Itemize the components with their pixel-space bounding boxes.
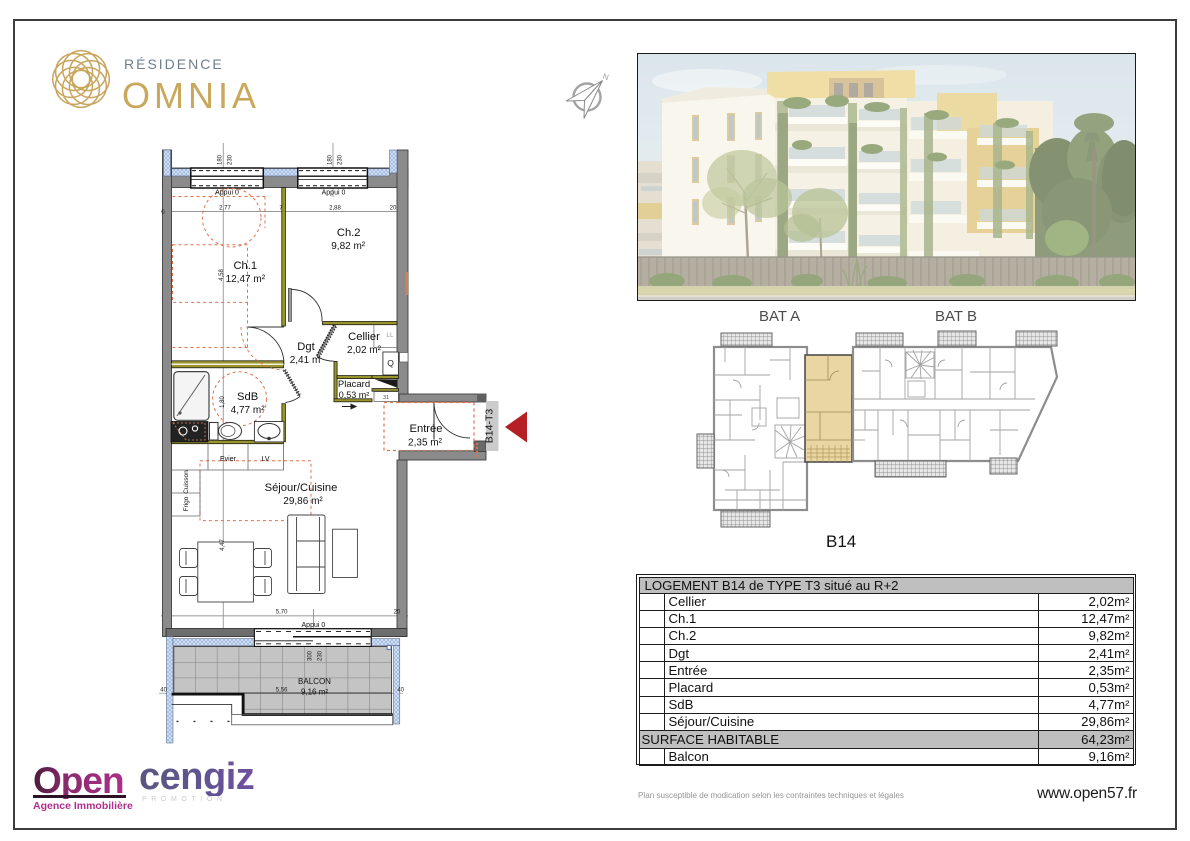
svg-text:Séjour/Cuisine: Séjour/Cuisine xyxy=(265,482,338,494)
svg-text:Dgt: Dgt xyxy=(297,341,315,353)
svg-text:4,47: 4,47 xyxy=(220,539,226,551)
svg-text:1,80: 1,80 xyxy=(220,396,226,408)
svg-text:2,77: 2,77 xyxy=(219,206,231,212)
svg-text:Frigo: Frigo xyxy=(183,496,190,511)
svg-text:230: 230 xyxy=(228,154,234,165)
svg-text:40: 40 xyxy=(397,688,404,694)
svg-text:31: 31 xyxy=(383,395,389,401)
svg-text:Q: Q xyxy=(387,358,394,368)
svg-text:Appui 0: Appui 0 xyxy=(215,190,239,197)
svg-text:SdB: SdB xyxy=(237,391,258,403)
svg-text:B14: B14 xyxy=(826,532,856,551)
svg-text:20: 20 xyxy=(394,610,401,616)
svg-text:Ch.2: Ch.2 xyxy=(337,227,361,239)
svg-text:RÉSIDENCE: RÉSIDENCE xyxy=(124,56,224,72)
svg-text:29,86 m²: 29,86 m² xyxy=(283,496,323,507)
svg-text:9,82 m²: 9,82 m² xyxy=(331,241,366,252)
svg-text:12,47 m²: 12,47 m² xyxy=(226,274,266,285)
svg-text:9,16 m²: 9,16 m² xyxy=(301,688,328,697)
svg-text:Placard: Placard xyxy=(338,379,370,390)
svg-text:0,53 m²: 0,53 m² xyxy=(339,390,370,400)
svg-text:2,41 m: 2,41 m xyxy=(290,355,321,366)
svg-text:Appui 0: Appui 0 xyxy=(322,190,346,197)
svg-text:230: 230 xyxy=(338,154,344,165)
svg-text:BAT B: BAT B xyxy=(935,308,977,325)
svg-text:2,35 m²: 2,35 m² xyxy=(408,438,443,449)
svg-text:300: 300 xyxy=(308,650,314,661)
svg-text:B14-T3: B14-T3 xyxy=(484,409,496,444)
svg-text:5,70: 5,70 xyxy=(276,610,288,616)
svg-text:BAT A: BAT A xyxy=(759,308,800,325)
svg-text:Cellier: Cellier xyxy=(348,331,380,343)
svg-text:LL: LL xyxy=(386,332,394,339)
svg-text:5,56: 5,56 xyxy=(276,688,288,694)
svg-text:2,02 m²: 2,02 m² xyxy=(347,345,382,356)
svg-text:BALCON: BALCON xyxy=(298,677,331,686)
svg-text:OMNIA: OMNIA xyxy=(122,75,260,116)
svg-text:230: 230 xyxy=(318,650,324,661)
svg-text:20: 20 xyxy=(390,206,397,212)
svg-text:4,58: 4,58 xyxy=(219,269,225,281)
svg-text:N: N xyxy=(602,72,610,82)
svg-text:Appui 0: Appui 0 xyxy=(302,622,326,629)
svg-text:4,77 m²: 4,77 m² xyxy=(231,405,266,416)
svg-text:Entrée: Entrée xyxy=(410,423,443,435)
svg-text:Ch.1: Ch.1 xyxy=(233,260,257,272)
svg-text:Evier: Evier xyxy=(220,456,237,463)
svg-text:LV: LV xyxy=(261,456,269,463)
svg-text:40: 40 xyxy=(160,688,167,694)
svg-text:180: 180 xyxy=(328,154,334,165)
svg-text:180: 180 xyxy=(218,154,224,165)
svg-text:2,88: 2,88 xyxy=(329,206,341,212)
svg-text:Cuisson: Cuisson xyxy=(183,470,190,494)
